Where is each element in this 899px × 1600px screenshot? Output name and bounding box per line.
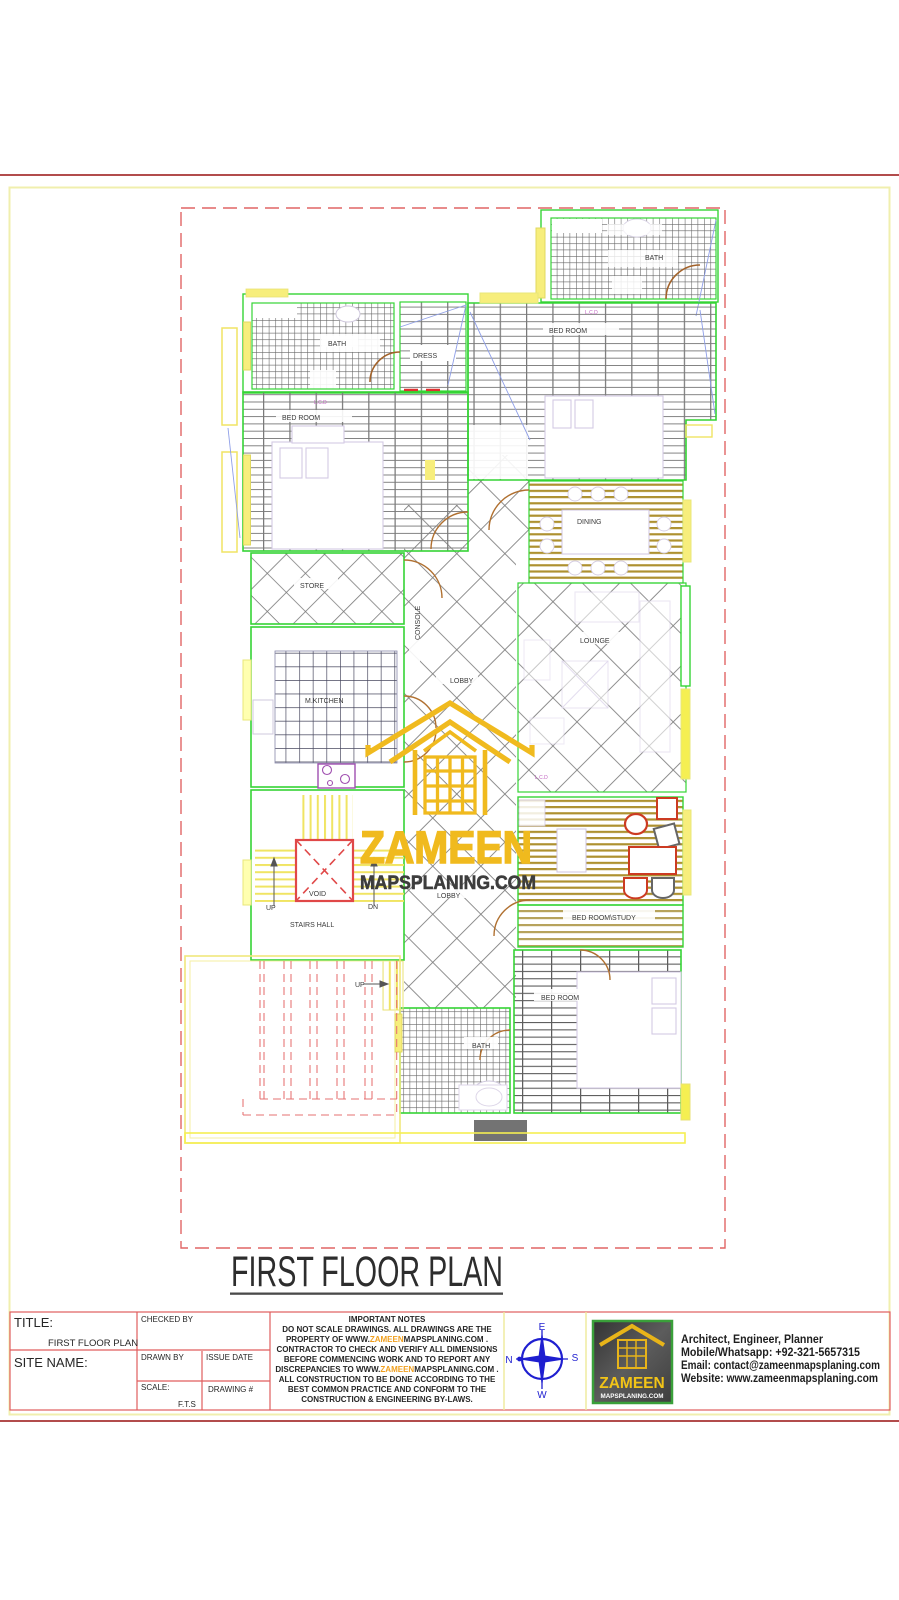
svg-text:DN: DN [368,904,378,911]
svg-text:LOUNGE: LOUNGE [580,638,610,645]
svg-text:STAIRS HALL: STAIRS HALL [290,922,334,929]
svg-text:BATH: BATH [645,255,663,262]
svg-text:Email: contact@zameenmapsplani: Email: contact@zameenmapsplaning.com [681,1358,880,1372]
svg-text:ZAMEEN: ZAMEEN [599,1375,664,1392]
svg-text:PROPERTY OF WWW.ZAMEENMAPSPLA: PROPERTY OF WWW.ZAMEENMAPSPLANING.COM . [286,1335,488,1344]
svg-text:Architect, Engineer, Planner: Architect, Engineer, Planner [681,1332,823,1346]
svg-text:MAPSPLANING.COM: MAPSPLANING.COM [360,872,536,894]
svg-text:L.C.D: L.C.D [585,310,598,316]
svg-text:M.KITCHEN: M.KITCHEN [305,698,344,705]
svg-text:UP: UP [355,982,365,989]
svg-text:F.T.S: F.T.S [178,1400,196,1409]
svg-text:CONSOLE: CONSOLE [415,605,422,640]
svg-text:LOBBY: LOBBY [450,678,474,685]
svg-text:S: S [572,1353,579,1364]
svg-text:ISSUE DATE: ISSUE DATE [206,1353,253,1362]
svg-text:L.C.D: L.C.D [314,400,327,406]
svg-text:DISCREPANCIES TO WWW.ZAMEENMAP: DISCREPANCIES TO WWW.ZAMEENMAPSPLANING.C… [275,1365,498,1374]
svg-text:SCALE:: SCALE: [141,1383,169,1392]
svg-text:DO NOT SCALE DRAWINGS. ALL DRA: DO NOT SCALE DRAWINGS. ALL DRAWINGS ARE … [282,1325,492,1334]
svg-text:VOID: VOID [309,891,326,898]
svg-text:ALL CONSTRUCTION TO BE DONE AC: ALL CONSTRUCTION TO BE DONE ACCORDING TO… [279,1375,496,1384]
svg-text:CHECKED BY: CHECKED BY [141,1315,194,1324]
svg-text:L.C.D: L.C.D [535,775,548,781]
svg-text:IMPORTANT NOTES: IMPORTANT NOTES [349,1315,426,1324]
svg-text:BED ROOM: BED ROOM [541,995,579,1002]
svg-text:SITE NAME:: SITE NAME: [14,1355,88,1370]
svg-text:ZAMEEN: ZAMEEN [360,822,532,873]
svg-text:W: W [537,1390,547,1401]
svg-text:BEST COMMON PRACTICE AND CONFO: BEST COMMON PRACTICE AND CONFORM TO THE [288,1385,487,1394]
svg-text:UP: UP [266,905,276,912]
svg-text:BED ROOM: BED ROOM [549,328,587,335]
svg-text:DRAWING #: DRAWING # [208,1385,254,1394]
svg-text:DRESS: DRESS [413,353,437,360]
svg-text:DRAWN BY: DRAWN BY [141,1353,184,1362]
svg-text:CONSTRUCTION & ENGINEERING BY-: CONSTRUCTION & ENGINEERING BY-LAWS. [301,1395,473,1404]
svg-text:BEFORE COMMENCING WORK AND TO: BEFORE COMMENCING WORK AND TO REPORT ANY [284,1355,491,1364]
svg-text:FIRST FLOOR PLAN: FIRST FLOOR PLAN [48,1338,138,1349]
svg-text:FIRST FLOOR PLAN: FIRST FLOOR PLAN [231,1248,503,1296]
svg-text:BED ROOM: BED ROOM [282,415,320,422]
svg-text:STORE: STORE [300,583,324,590]
svg-text:BED ROOM\STUDY: BED ROOM\STUDY [572,915,636,922]
svg-text:LOBBY: LOBBY [437,893,461,900]
svg-text:DINING: DINING [577,519,602,526]
svg-text:CONTRACTOR TO CHECK AND VERIFY: CONTRACTOR TO CHECK AND VERIFY ALL DIMEN… [276,1345,498,1354]
svg-text:N: N [505,1355,512,1366]
svg-text:E: E [539,1322,546,1333]
svg-text:BATH: BATH [472,1043,490,1050]
svg-text:Website: www.zameenmapsplaning: Website: www.zameenmapsplaning.com [681,1371,878,1385]
svg-text:MAPSPLANING.COM: MAPSPLANING.COM [601,1393,664,1400]
svg-text:TITLE:: TITLE: [14,1315,53,1330]
svg-text:BATH: BATH [328,341,346,348]
svg-text:Mobile/Whatsapp: +92-321-56573: Mobile/Whatsapp: +92-321-5657315 [681,1345,860,1359]
